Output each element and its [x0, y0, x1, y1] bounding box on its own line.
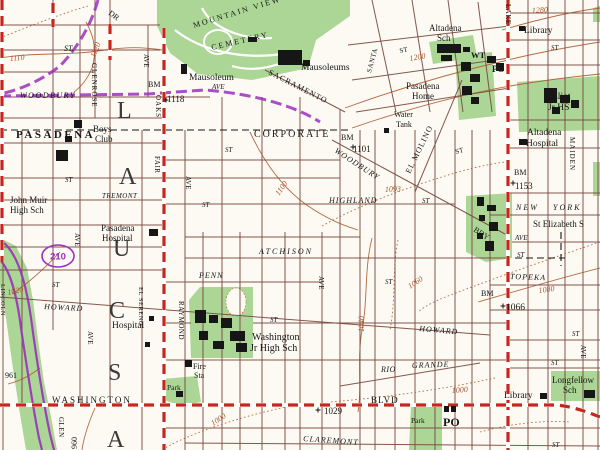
- highway-shield-route-number: 210: [50, 252, 66, 263]
- map-label-fair: FAIR: [153, 156, 161, 173]
- map-label-water: Water: [394, 110, 413, 119]
- map-label-hospital: Hospital: [112, 321, 145, 331]
- map-label-ave: AVE: [142, 54, 150, 67]
- map-label-1029: 1029: [324, 406, 343, 416]
- building: [149, 316, 154, 321]
- map-label-woodbury: WOODBURY: [20, 91, 76, 100]
- building: [477, 197, 484, 206]
- building: [487, 56, 496, 63]
- building: [213, 341, 224, 349]
- map-label-atchison: ATCHISON: [258, 247, 313, 256]
- map-label-boys: Boys: [93, 124, 112, 134]
- topo-map[interactable]: Topographic map — Pasadena / Altadena qu…: [0, 0, 600, 450]
- map-label-oaks: OAKS: [154, 95, 162, 118]
- building: [236, 343, 247, 352]
- map-label-960: 960: [70, 437, 79, 449]
- map-label-st: ST.: [64, 44, 74, 53]
- map-label-altadena: Altadena: [527, 128, 562, 138]
- building: [185, 360, 192, 367]
- map-label-1110: 1110: [9, 53, 25, 63]
- building: [278, 50, 302, 65]
- map-label-961: 961: [5, 371, 17, 380]
- map-label-s: S: [108, 360, 121, 386]
- map-label-pasadena: Pasadena: [406, 81, 440, 91]
- building: [487, 205, 496, 211]
- map-label-park: Park: [411, 416, 425, 425]
- map-label-john-muir: John Muir: [10, 195, 47, 205]
- map-label-longfellow: Longfellow: [552, 375, 594, 385]
- map-label-library: Library: [524, 26, 553, 36]
- map-label-st-elizabeth-s: St Elizabeth S: [533, 219, 584, 229]
- map-label-maiden: MAIDEN: [568, 137, 576, 171]
- map-label-tank: Tank: [396, 120, 412, 129]
- map-label-tremont: TREMONT: [102, 192, 138, 200]
- map-label-st: ST: [52, 281, 61, 289]
- map-label-york: YORK: [553, 203, 581, 212]
- map-label-lincoln: LINCOLN: [0, 284, 6, 316]
- school-field-oval: [226, 288, 246, 316]
- map-label-ave: AVE: [317, 276, 325, 289]
- map-label-st: ST: [551, 359, 560, 367]
- building: [209, 315, 218, 323]
- building: [540, 393, 547, 399]
- map-label-bm: BM: [341, 133, 353, 142]
- map-label-mausoleum: Mausoleum: [189, 73, 234, 83]
- map-label-high-sch: High Sch: [10, 205, 44, 215]
- building: [470, 74, 480, 82]
- building: [441, 55, 452, 61]
- map-label-1066: 1066: [506, 303, 525, 313]
- building: [56, 150, 68, 161]
- building: [221, 318, 232, 328]
- map-label-park: Park: [167, 383, 181, 392]
- map-label-st: ST: [385, 278, 394, 286]
- map-label-glen: GLEN: [57, 417, 65, 438]
- building: [462, 86, 472, 95]
- map-label-eliot: Eliot: [552, 92, 571, 102]
- map-label-highland: HIGHLAND: [328, 196, 377, 205]
- building: [384, 128, 389, 133]
- map-label-st: ST: [552, 441, 561, 449]
- building: [74, 120, 82, 128]
- map-label-jr-hs: Jr HS: [548, 103, 569, 113]
- map-label-hospital: Hospital: [526, 139, 559, 149]
- map-label-jr-high-sch: Jr High Sch: [250, 343, 297, 354]
- building: [479, 215, 485, 221]
- building: [461, 62, 471, 71]
- map-label-l: L: [117, 98, 132, 124]
- map-label-1153: 1153: [515, 181, 533, 191]
- map-label-pasadena: PASADENA: [16, 129, 95, 141]
- building: [463, 47, 470, 52]
- map-label-st: ST: [65, 176, 74, 184]
- map-label-wt: WT: [471, 50, 486, 60]
- map-label-1280: 1280: [532, 5, 548, 15]
- map-label-a: A: [119, 164, 137, 190]
- map-label-u: U: [113, 236, 130, 262]
- map-label-ave: AVE: [73, 233, 81, 246]
- building: [571, 100, 579, 108]
- map-label-po: PO: [492, 64, 505, 74]
- map-label-penn: PENN: [198, 271, 223, 280]
- map-label-1093: 1093: [385, 184, 401, 194]
- map-label-club: Club: [95, 134, 113, 144]
- right-edge-park-sliver: [593, 162, 600, 196]
- map-label-bm: BM: [148, 80, 160, 89]
- building: [199, 331, 208, 340]
- map-label-st: ST: [572, 330, 581, 338]
- map-label-corporate: CORPORATE: [254, 129, 330, 140]
- map-label-a: A: [107, 427, 125, 450]
- map-label-lake: LAKE: [504, 4, 512, 25]
- map-label-grande: GRANDE: [412, 360, 450, 370]
- map-label-st: ST: [551, 44, 560, 52]
- map-label-1101: 1101: [353, 144, 371, 154]
- building: [145, 342, 150, 347]
- map-label-blvd: BLVD: [371, 395, 399, 405]
- map-label-ave: AVE: [184, 176, 192, 189]
- map-label-washington: WASHINGTON: [52, 395, 132, 405]
- map-label-1040: 1040: [357, 316, 366, 332]
- building: [584, 390, 595, 398]
- park-south: [409, 404, 442, 450]
- building: [451, 406, 456, 412]
- map-label-po: PO: [443, 415, 460, 429]
- map-label-ave: AVE: [211, 83, 225, 91]
- building: [181, 64, 187, 74]
- map-label-st: ST: [422, 197, 431, 205]
- map-label-ave: AVE: [86, 331, 94, 344]
- map-label-library: Library: [504, 391, 533, 401]
- topo-map-canvas[interactable]: 210DRST.11101120GLENROSEAVEOAKSBM1118WOO…: [0, 0, 600, 450]
- map-label-fire: Fire: [193, 362, 206, 371]
- building: [444, 406, 449, 412]
- building: [149, 229, 158, 236]
- building: [230, 331, 245, 341]
- map-label-ave: AVE: [514, 234, 528, 242]
- map-label-1000: 1000: [452, 385, 469, 395]
- map-label-washington: Washington: [252, 332, 300, 343]
- map-label-sch: Sch: [437, 33, 451, 43]
- map-label-st: ST: [225, 146, 234, 154]
- map-label-st: ST: [202, 201, 211, 209]
- map-label-sta: Sta: [194, 371, 205, 380]
- building: [195, 310, 206, 323]
- map-label-ave: AVE: [579, 345, 587, 358]
- map-label-home: Home: [412, 91, 434, 101]
- map-label-raymond: RAYMOND: [177, 301, 185, 340]
- map-label-1118: 1118: [167, 94, 185, 104]
- map-label-sch: Sch: [563, 385, 577, 395]
- map-label-rio: RIO: [380, 365, 396, 374]
- map-label-st: ST: [517, 251, 526, 259]
- building: [471, 97, 479, 104]
- map-label-st: ST: [270, 316, 279, 324]
- building: [437, 44, 461, 53]
- map-label-topeka: TOPEKA: [510, 272, 546, 282]
- map-label-mausoleums: Mausoleums: [301, 63, 350, 73]
- map-label-pasadena: Pasadena: [101, 223, 135, 233]
- map-label-bm: BM: [481, 289, 493, 298]
- building: [489, 222, 498, 231]
- map-label-glenrose: GLENROSE: [90, 63, 98, 108]
- map-label-bm: BM: [514, 168, 526, 177]
- map-label-altadena: Altadena: [429, 23, 461, 33]
- building: [485, 241, 494, 251]
- map-label-new: NEW: [515, 203, 539, 212]
